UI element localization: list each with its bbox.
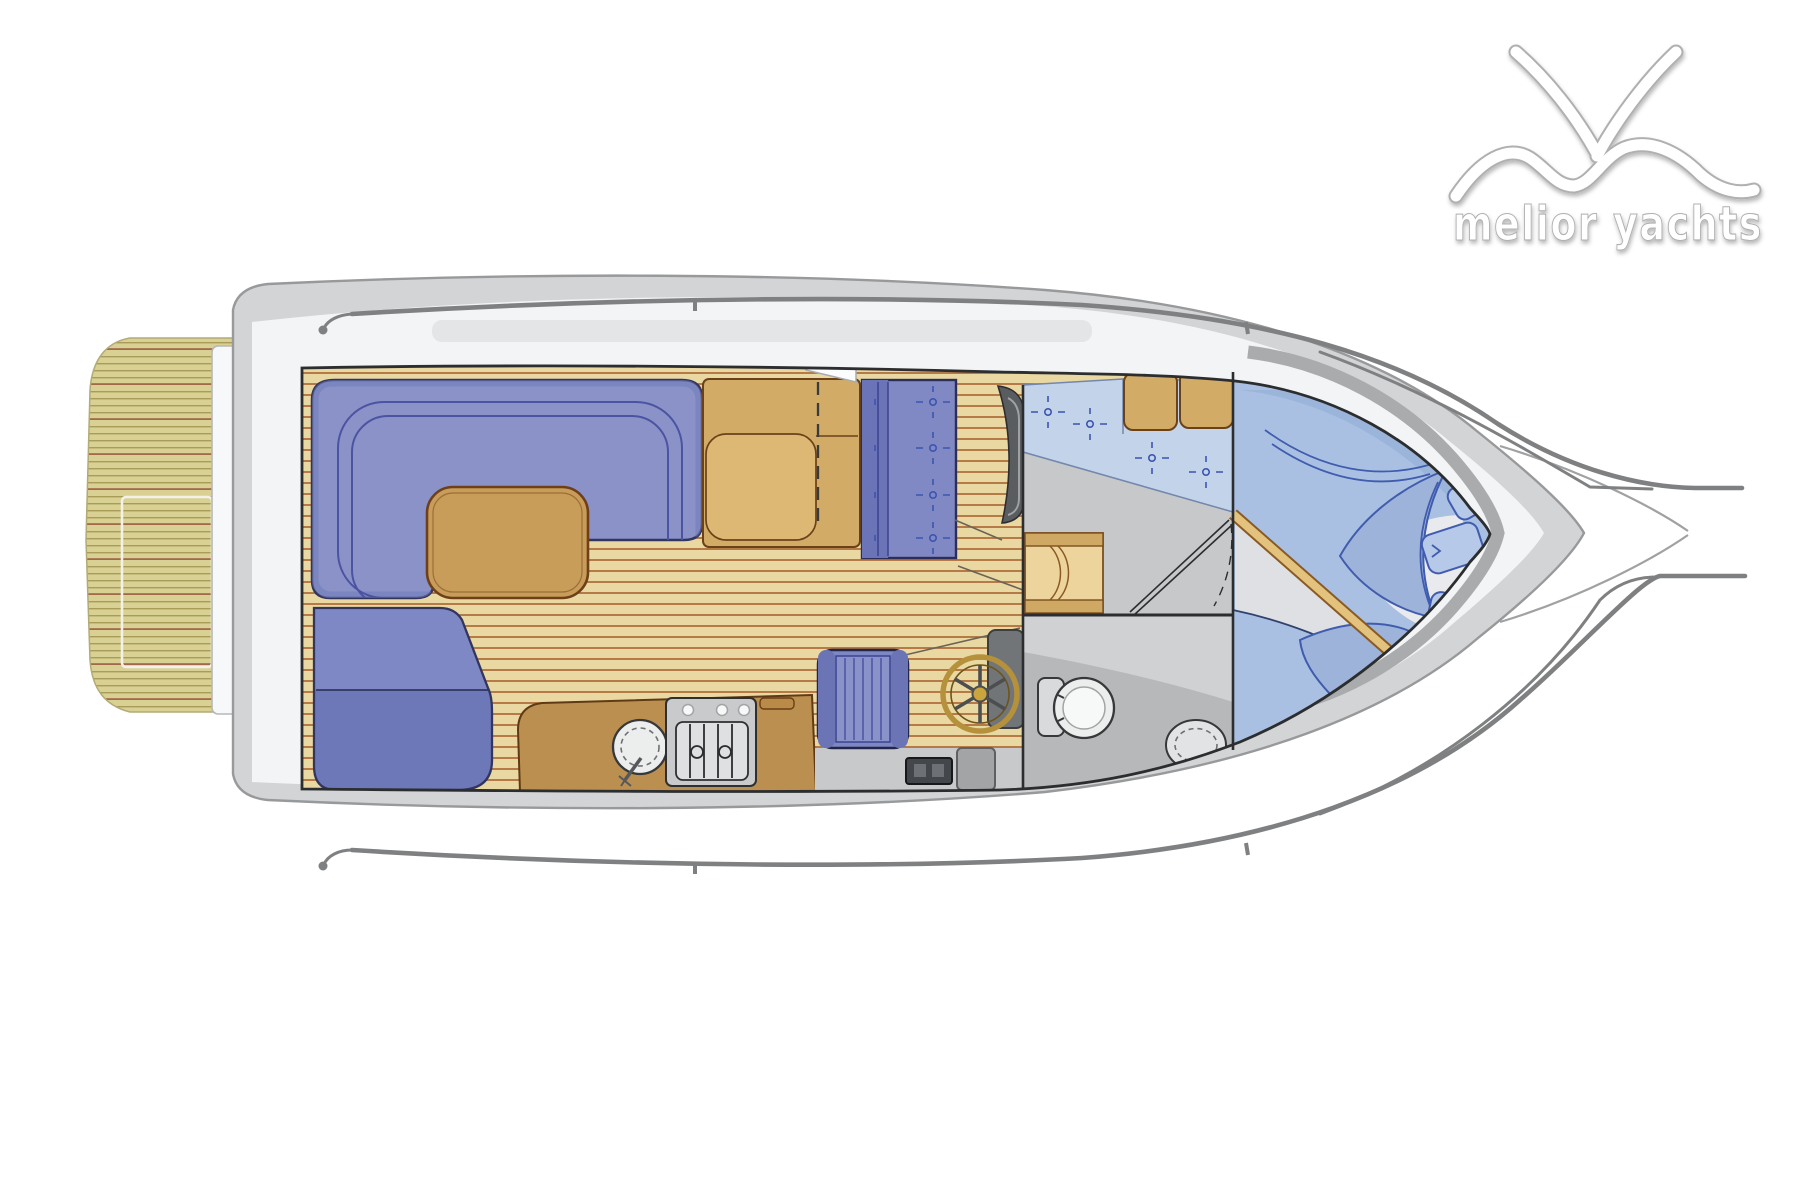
yacht-floorplan-page: melior yachts	[0, 0, 1800, 1179]
melior-yachts-logo: melior yachts	[1453, 52, 1763, 252]
galley-stove	[666, 698, 756, 786]
cabin-roof-edge	[432, 320, 1092, 342]
logo-wave-icon	[1456, 52, 1754, 196]
logo-brand-text: melior yachts	[1453, 197, 1763, 252]
helm-seat	[818, 650, 908, 748]
yacht-floorplan-drawing: melior yachts	[0, 0, 1800, 1179]
interior	[295, 356, 1513, 796]
head-compartment	[1023, 615, 1233, 795]
step-seat	[1025, 533, 1103, 613]
cockpit-table	[427, 487, 588, 598]
salon-cabinet	[703, 379, 860, 547]
counter-handle	[760, 698, 794, 709]
head-toilet	[1038, 678, 1114, 738]
copilot-bench	[862, 380, 956, 558]
